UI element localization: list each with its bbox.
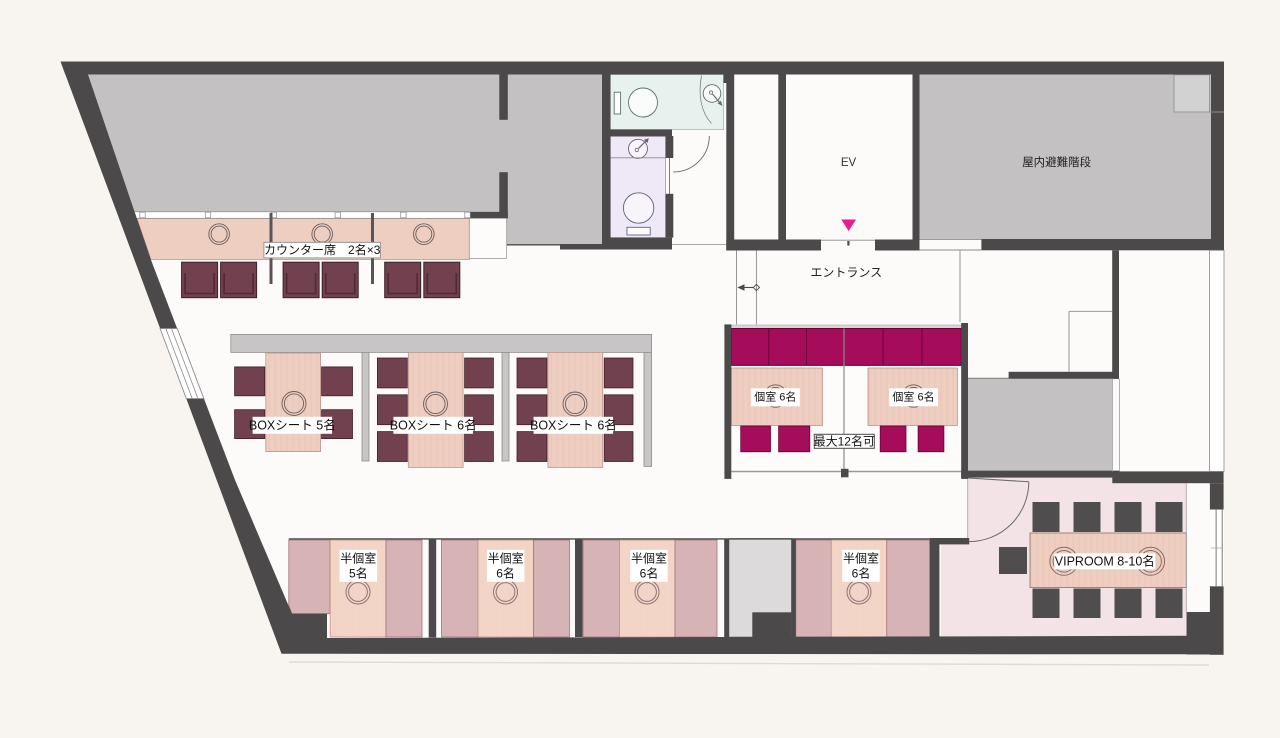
svg-text:EV: EV [841, 157, 857, 169]
svg-text:半個室: 半個室 [340, 550, 376, 565]
svg-text:半個室: 半個室 [631, 550, 667, 565]
svg-text:BOXシート 5名: BOXシート 5名 [249, 417, 336, 432]
svg-text:6名: 6名 [852, 565, 871, 580]
svg-text:5名: 5名 [349, 565, 368, 580]
svg-text:個室 6名: 個室 6名 [892, 389, 934, 403]
svg-text:6名: 6名 [640, 565, 659, 580]
svg-text:半個室: 半個室 [488, 550, 524, 565]
svg-text:VIPROOM 8-10名: VIPROOM 8-10名 [1055, 553, 1155, 568]
svg-text:BOXシート 6名: BOXシート 6名 [390, 417, 477, 432]
svg-text:半個室: 半個室 [843, 550, 879, 565]
svg-text:カウンター席 2名×3: カウンター席 2名×3 [264, 242, 381, 257]
svg-text:最大12名可: 最大12名可 [814, 433, 875, 448]
svg-text:個室 6名: 個室 6名 [754, 389, 796, 403]
svg-text:屋内避難階段: 屋内避難階段 [1022, 155, 1091, 169]
svg-text:BOXシート 6名: BOXシート 6名 [530, 417, 617, 432]
svg-text:エントランス: エントランス [810, 266, 882, 280]
svg-text:6名: 6名 [496, 565, 515, 580]
